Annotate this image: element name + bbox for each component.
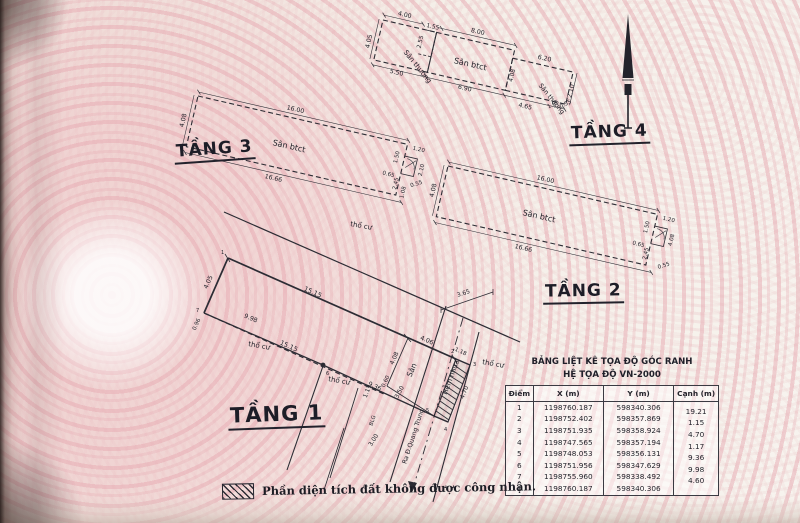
coordinate-table-title-line2: HỆ TỌA ĐỘ VN-2000	[505, 369, 719, 382]
table-cell: 598357.869	[603, 413, 673, 425]
tang4-dim: 6.90	[457, 84, 472, 94]
tang1-area-san-label: Sân	[405, 361, 419, 378]
scanned-floor-plan-page: Sân thượng Sân btct Sân thượng 4.00 4.05…	[0, 0, 800, 523]
boundary-point-number: 2	[451, 349, 454, 355]
tang3-dim: 0.55	[410, 180, 424, 189]
tang1-dim: 4.06	[419, 335, 434, 347]
tang2-dim: 0.55	[657, 261, 671, 270]
table-cell: 598347.629	[603, 460, 673, 472]
tang4-plan: Sân thượng Sân btct Sân thượng 4.00 4.05…	[359, 5, 585, 121]
tang3-dim: 1.08	[399, 185, 408, 199]
tang3-dim: 2.10	[418, 163, 427, 177]
table-cell: 1198760.187	[533, 401, 603, 413]
tang1-dim: 1.17	[362, 384, 374, 399]
table-cell: 1198751.956	[533, 460, 603, 472]
north-arrow-icon	[622, 14, 634, 128]
tang2-plan: Sân btct 16.00 4.08 16.66 1.20 1.50 0.65…	[421, 152, 684, 286]
table-header-cell: Cạnh (m)	[674, 385, 719, 401]
table-cell: 4.60	[674, 475, 719, 487]
tang3-dim: 0.65	[382, 171, 396, 180]
tang3-dim: 16.00	[286, 104, 305, 115]
coordinate-table: Điểm X (m) Y (m) Cạnh (m) 1 1198760.187 …	[505, 385, 719, 496]
table-cell: 1	[506, 401, 534, 413]
curb-blg-label: BLG	[369, 415, 378, 427]
table-header-cell: X (m)	[533, 385, 603, 401]
tang2-dim: 0.65	[632, 241, 646, 250]
tang1-dim: 0.96	[192, 317, 203, 331]
table-header-cell: Y (m)	[603, 385, 673, 401]
table-cell: 3	[506, 425, 534, 437]
boundary-point-number: 3	[473, 362, 476, 368]
boundary-point-number: 4	[444, 427, 447, 433]
tang4-title: TẦNG 4	[569, 121, 650, 147]
tang1-dim: 3.00	[367, 433, 380, 448]
table-cell: 2	[506, 413, 534, 425]
table-header-cell: Điểm	[506, 385, 534, 401]
table-cell: 4.70	[674, 429, 719, 441]
table-cell: 1198748.053	[533, 448, 603, 460]
tang2-dim: 16.00	[536, 174, 555, 185]
table-cell: 1198760.187	[533, 483, 603, 495]
tang4-dim: 6.20	[537, 54, 552, 64]
tang2-dim: 1.20	[662, 216, 676, 225]
table-cell: 1198755.960	[533, 471, 603, 483]
table-cell: 598357.194	[603, 437, 673, 449]
coordinate-table-block: BẢNG LIỆT KÊ TỌA ĐỘ GÓC RANH HỆ TỌA ĐỘ V…	[505, 356, 719, 496]
boundary-point-number: 1	[221, 250, 224, 256]
tang3-dim: 1.50	[393, 150, 402, 164]
tang1-title: TẦNG 1	[228, 400, 326, 430]
boundary-point-number: 7	[196, 308, 199, 314]
table-cell: 1.15	[674, 417, 719, 429]
tang1-dim: 3.65	[456, 288, 471, 299]
tang3-dim: 1.20	[412, 146, 426, 155]
table-cell: 598340.306	[603, 483, 673, 495]
tang1-dim: 15.15	[279, 339, 299, 354]
table-cell: 598358.924	[603, 425, 673, 437]
land-type-label: thổ cư	[350, 219, 374, 232]
boundary-point-6-dot	[321, 363, 326, 368]
tang4-area-mid-label: Sân btct	[453, 56, 488, 72]
tang1-dim: 3.50	[393, 385, 406, 400]
table-cell: 9.36	[674, 452, 719, 464]
tang3-area-label: Sân btct	[272, 138, 307, 154]
table-cell: 9.98	[674, 464, 719, 476]
tang4-dim: 4.65	[518, 102, 533, 112]
table-cell: 1198752.402	[533, 413, 603, 425]
table-cell: 1198747.565	[533, 437, 603, 449]
boundary-point-number: 5	[426, 408, 429, 414]
tang2-dim: 1.50	[643, 220, 652, 234]
tang2-title: TẦNG 2	[543, 280, 624, 304]
table-row: 1 1198760.187 598340.306 19.21	[506, 401, 719, 413]
table-cell: 6	[506, 460, 534, 472]
tang2-dim: 4.08	[668, 233, 677, 247]
table-cell: 5	[506, 448, 534, 460]
table-cell: 19.21	[674, 405, 719, 417]
table-cell: 1198751.935	[533, 425, 603, 437]
tang1-linework	[204, 212, 520, 502]
coordinate-table-title: BẢNG LIỆT KÊ TỌA ĐỘ GÓC RANH HỆ TỌA ĐỘ V…	[505, 356, 719, 382]
table-cell: 598340.306	[603, 401, 673, 413]
tang1-dim: 4.05	[203, 275, 215, 290]
tang1-dim: 1.18	[454, 347, 468, 358]
table-cell	[674, 487, 719, 499]
tang1-dim: 15.15	[303, 285, 323, 300]
tang3-dim: 16.66	[264, 173, 283, 184]
road-quang-trung-label: Ra Đ.Quang Trung	[401, 408, 425, 465]
table-cell: 598356.131	[603, 448, 673, 460]
hatched-area-legend-icon	[222, 483, 254, 500]
tang4-dim: 2.55	[417, 35, 426, 49]
tang1-plan: thổ cư thổ cư thổ cư thổ cư 15.15 4.06 1…	[192, 212, 520, 502]
tang4-dim: 2.10	[566, 84, 576, 99]
tang4-dim: 5.50	[389, 68, 404, 78]
table-cell: 1.17	[674, 441, 719, 453]
coordinate-table-title-line1: BẢNG LIỆT KÊ TỌA ĐỘ GÓC RANH	[505, 356, 719, 369]
table-cell: 4	[506, 437, 534, 449]
tang1-dim: 9.98	[243, 313, 258, 325]
tang1-dim: 0.60	[381, 374, 392, 388]
tang2-dim: 16.66	[514, 243, 533, 254]
table-cell: 598338.492	[603, 471, 673, 483]
tang2-area-label: Sân btct	[522, 208, 557, 224]
boundary-point-number: 6	[326, 371, 329, 377]
legend-text: Phần diện tích đất không được công nhận.	[262, 479, 536, 498]
land-type-label: thổ cư	[482, 357, 506, 370]
